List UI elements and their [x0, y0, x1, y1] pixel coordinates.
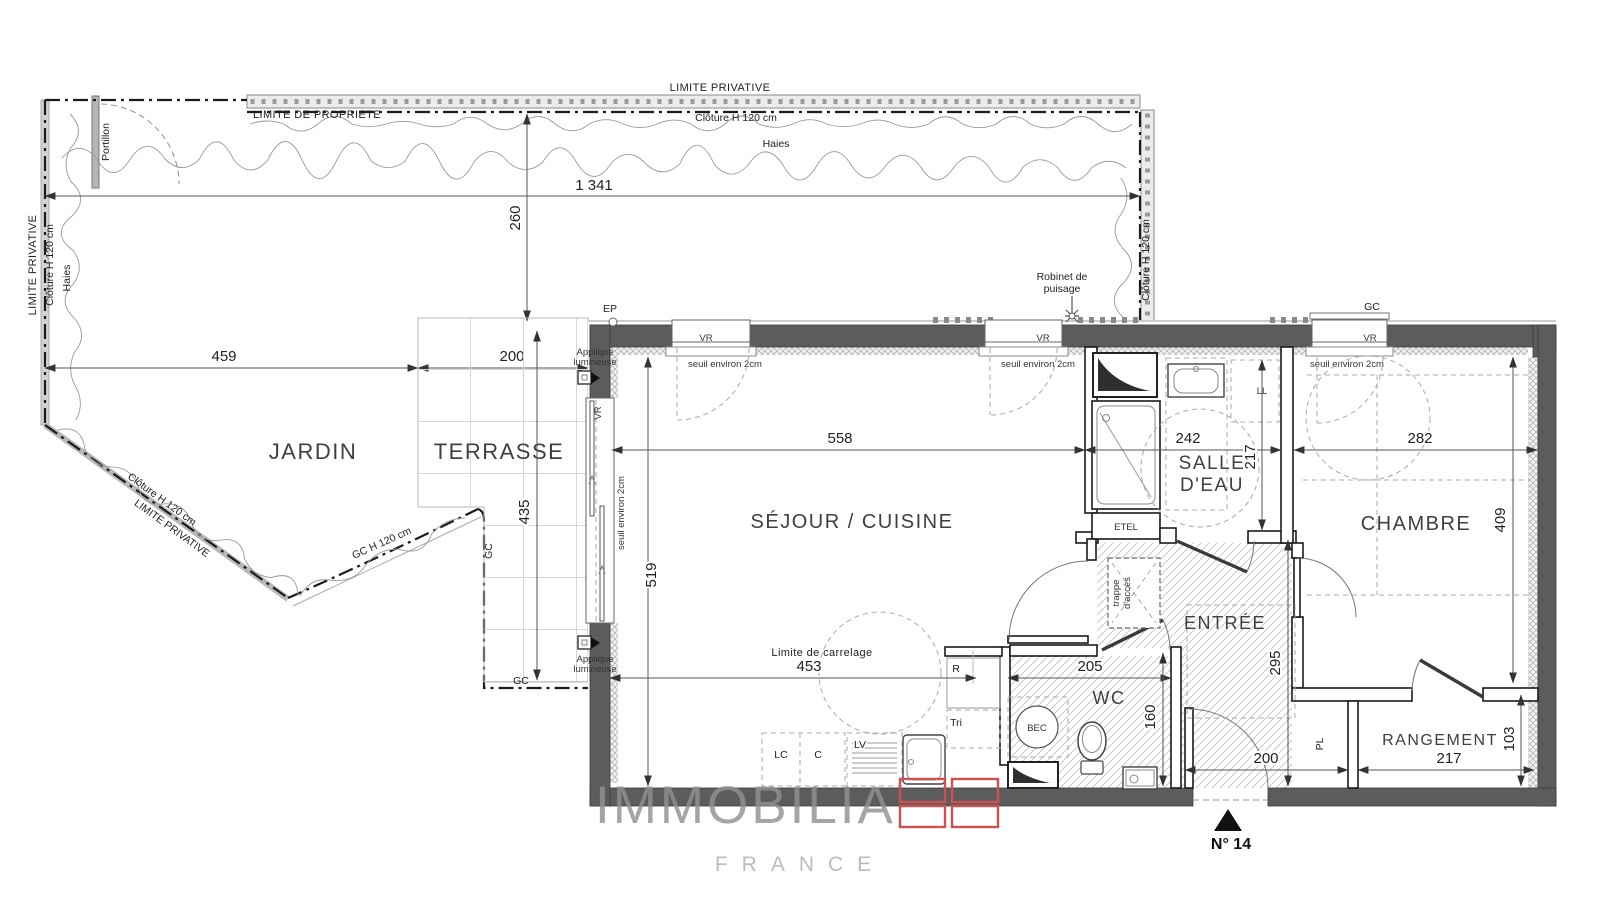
label-r: R — [952, 663, 960, 675]
label-portillon: Portillon — [100, 123, 112, 161]
label-vr-3: VR — [1363, 333, 1376, 344]
dim-558: 558 — [827, 430, 852, 447]
door-sejour-leaf — [1008, 636, 1088, 643]
room-rangement: RANGEMENT — [1382, 732, 1498, 749]
label-trappe-2: d'accès — [1122, 577, 1133, 609]
label-gc-chambre: GC — [1364, 301, 1380, 313]
label-haies-left: Haies — [61, 265, 73, 292]
room-salle-deau-1: SALLE — [1179, 453, 1246, 474]
label-vr-1: VR — [699, 333, 712, 344]
dim-160: 160 — [1142, 704, 1159, 729]
trappe-acces: trappe d'accès — [1108, 558, 1160, 628]
wall-light-icon — [578, 371, 591, 384]
boundary-gc-arc — [288, 509, 478, 598]
label-etel: ETEL — [1114, 522, 1138, 533]
terrace-area: TERRASSE 435 GC GC — [418, 318, 588, 687]
label-limite-privative-top: LIMITE PRIVATIVE — [670, 82, 771, 94]
label-cloture-right: Clôture H 120 cm — [1140, 219, 1152, 301]
room-wc: WC — [1093, 688, 1126, 708]
label-pl: PL — [1314, 737, 1326, 750]
robinet-puisage: Robinet de puisage — [1037, 271, 1088, 322]
label-seuil-1: seuil environ 2cm — [688, 359, 762, 370]
label-bec: BEC — [1027, 723, 1047, 734]
dim-519: 519 — [643, 562, 660, 587]
label-gc-terrace-side: GC — [483, 543, 495, 559]
dim-103: 103 — [1501, 726, 1518, 751]
dim-242: 242 — [1175, 430, 1200, 447]
dim-282: 282 — [1407, 430, 1432, 447]
gate-swing-arc — [101, 104, 179, 184]
label-seuil-baie: seuil environ 2cm — [616, 476, 627, 550]
label-seuil-2: seuil environ 2cm — [1001, 359, 1075, 370]
dim-260: 260 — [507, 205, 524, 230]
label-lc: LC — [774, 749, 788, 761]
toilet-tank — [1081, 761, 1103, 774]
entrance-marker: N° 14 — [1211, 809, 1251, 853]
label-limite-propriete: LIMITE DE PROPRIETE — [253, 109, 381, 121]
dim-435: 435 — [516, 499, 533, 524]
label-vr-baie: VR — [593, 406, 604, 419]
logo-brand: IMMOBILIA — [595, 776, 896, 835]
dim-205: 205 — [1077, 658, 1102, 675]
floor-plan-page: 1 341 260 459 200 LIMITE PRIVATIVE LIMIT… — [0, 0, 1600, 898]
dim-1341: 1 341 — [575, 177, 613, 194]
label-lv: LV — [854, 739, 866, 751]
apartment: VR seuil environ 2cm VR seuil environ 2c… — [573, 271, 1556, 807]
label-limite-carrelage: Limite de carrelage — [771, 647, 872, 659]
top-fence-posts — [247, 95, 1140, 108]
label-gc-terrace-bottom: GC — [513, 675, 529, 687]
label-robinet-2: puisage — [1044, 283, 1081, 295]
room-sejour-cuisine: SÉJOUR / CUISINE — [751, 510, 954, 533]
label-applique-bottom-2: lumineuse — [573, 664, 616, 675]
dim-409: 409 — [1492, 507, 1509, 532]
wall-light-icon — [578, 636, 591, 649]
label-trappe-1: trappe — [1111, 580, 1122, 607]
label-tri: Tri — [950, 717, 962, 729]
north-triangle-icon — [1214, 809, 1242, 831]
room-salle-deau-2: D'EAU — [1180, 475, 1244, 496]
dim-295: 295 — [1267, 650, 1284, 675]
terrace-tiles — [418, 318, 588, 682]
dim-217-rangement: 217 — [1436, 750, 1461, 767]
label-vr-2: VR — [1036, 333, 1049, 344]
portillon-gate — [92, 96, 99, 188]
dim-453: 453 — [796, 658, 821, 675]
label-cloture-top: Clôture H 120 cm — [695, 112, 777, 124]
label-cloture-left: Clôture H 120 cm — [44, 224, 56, 306]
unit-number: N° 14 — [1211, 836, 1251, 853]
gc-arc-companion — [293, 517, 481, 606]
hedge-arc — [300, 518, 465, 596]
label-c: C — [814, 749, 822, 761]
label-seuil-3: seuil environ 2cm — [1310, 359, 1384, 370]
label-applique-top-2: lumineuse — [573, 357, 616, 368]
room-terrasse: TERRASSE — [434, 439, 565, 464]
hedge-top-1 — [250, 116, 1132, 132]
room-chambre: CHAMBRE — [1361, 513, 1472, 535]
door-entree-leaf — [1185, 708, 1193, 788]
hedge-right — [1114, 178, 1131, 318]
label-ep: EP — [603, 303, 617, 315]
room-jardin: JARDIN — [269, 439, 357, 464]
label-haies-top: Haies — [763, 138, 790, 150]
floor-plan-drawing: 1 341 260 459 200 LIMITE PRIVATIVE LIMIT… — [0, 0, 1600, 898]
dim-200-entree: 200 — [1253, 750, 1278, 767]
dim-459: 459 — [211, 348, 236, 365]
logo-country: FRANCE — [715, 853, 885, 876]
label-robinet-1: Robinet de — [1037, 271, 1088, 283]
label-limite-privative-left: LIMITE PRIVATIVE — [27, 215, 39, 316]
room-entree: ENTRÉE — [1184, 613, 1266, 633]
label-gc-fence: GC H 120 cm — [350, 525, 413, 562]
kitchen-sink — [903, 735, 945, 784]
